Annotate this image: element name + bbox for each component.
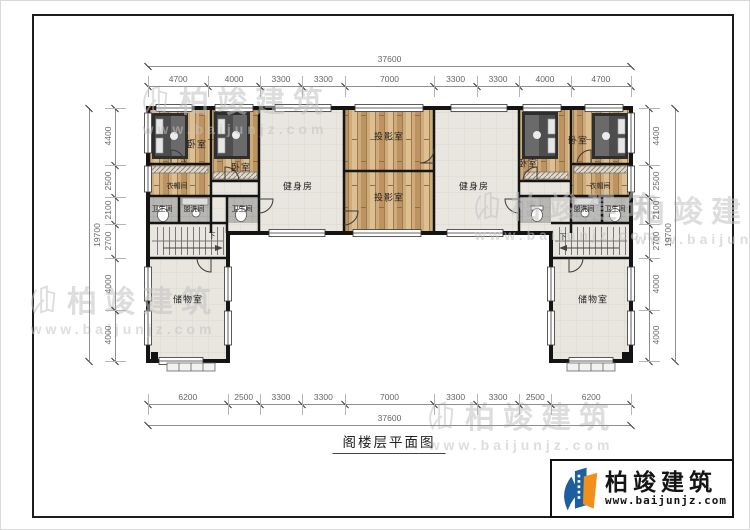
dimension-extension <box>639 108 660 109</box>
dimension-total-line <box>89 108 90 361</box>
dimension-extension <box>639 197 660 198</box>
dimension-extension <box>477 394 478 415</box>
dimension-label: 2500 <box>651 171 661 190</box>
dimension-extension <box>345 394 346 415</box>
dimension-extension <box>105 361 126 362</box>
dimension-extension <box>551 394 552 415</box>
dimension-extension <box>105 310 126 311</box>
dimension-label: 2700 <box>651 231 661 250</box>
room-label-closet: 衣帽间 <box>167 181 188 191</box>
dimension-total-line <box>148 425 631 426</box>
stairs-down-label: 下 <box>209 231 216 241</box>
dimension-label: 7000 <box>380 392 399 402</box>
dimension-extension <box>631 394 632 415</box>
brand-logo-icon <box>557 464 600 514</box>
dimension-extension <box>639 310 660 311</box>
dimension-label: 4700 <box>591 74 610 84</box>
dimension-line <box>148 404 631 405</box>
dimension-total-label: 37600 <box>378 413 402 423</box>
dimension-label: 2500 <box>103 171 113 190</box>
brand-name: 柏竣建筑 <box>605 470 727 494</box>
room-label-gym: 健身房 <box>283 180 313 193</box>
dimension-extension <box>105 165 126 166</box>
dimension-label: 3300 <box>446 392 465 402</box>
drawing-title: 阁楼层平面图 <box>333 435 446 454</box>
dimension-total-label: 37600 <box>378 54 402 64</box>
dimension-line <box>649 108 650 361</box>
dimension-label: 6200 <box>178 392 197 402</box>
drawing-title-wrap: 阁楼层平面图 <box>333 431 446 452</box>
room-label-bedroom: 卧室 <box>568 134 588 147</box>
dimension-extension <box>302 394 303 415</box>
dimension-extension <box>434 76 435 97</box>
room-label-bedroom: 卧室 <box>187 138 207 151</box>
dimension-label: 2100 <box>103 201 113 220</box>
dimension-extension <box>148 76 149 97</box>
dimension-label: 2700 <box>103 231 113 250</box>
floor-plan-page: 柏竣建筑 www.baijunjz.com 柏竣建筑 www.baijunjz.… <box>0 0 750 530</box>
dimension-label: 3300 <box>314 392 333 402</box>
dimension-extension <box>571 76 572 97</box>
dimension-extension <box>639 165 660 166</box>
dimension-label: 6200 <box>582 392 601 402</box>
brand-logo-box: 柏竣建筑 www.baijunjz.com <box>550 459 734 518</box>
dimension-label: 2500 <box>234 392 253 402</box>
dimension-line <box>148 86 631 87</box>
dimension-extension <box>302 76 303 97</box>
dimension-extension <box>105 108 126 109</box>
dimension-label: 3300 <box>446 74 465 84</box>
dimension-extension <box>105 258 126 259</box>
dimension-label: 2500 <box>526 392 545 402</box>
dimension-extension <box>208 76 209 97</box>
room-label-projection: 投影室 <box>374 130 404 143</box>
dimension-total-line <box>675 108 676 361</box>
dimension-label: 4700 <box>169 74 188 84</box>
brand-url: www.baijunjz.com <box>605 494 727 507</box>
room-label-gym: 健身房 <box>459 180 489 193</box>
dimension-extension <box>105 224 126 225</box>
dimension-total-label: 19700 <box>92 223 102 247</box>
room-label-closet: 衣帽间 <box>590 181 611 191</box>
dimension-extension <box>260 394 261 415</box>
dimension-total-line <box>148 66 631 67</box>
room-label-storage: 储物室 <box>173 293 203 306</box>
room-label-bedroom: 卧室 <box>231 161 251 174</box>
dimension-extension <box>345 76 346 97</box>
dimension-label: 4000 <box>651 274 661 293</box>
dimension-extension <box>519 394 520 415</box>
dimension-extension <box>477 76 478 97</box>
dimension-extension <box>631 76 632 97</box>
room-label-wash: 盥洗间 <box>184 204 205 214</box>
dimension-label: 4000 <box>225 74 244 84</box>
dimension-extension <box>519 76 520 97</box>
dimension-extension <box>105 197 126 198</box>
room-label-storage: 储物室 <box>578 293 608 306</box>
dimension-label: 3300 <box>489 74 508 84</box>
dimension-extension <box>639 361 660 362</box>
dimension-extension <box>148 394 149 415</box>
dimension-extension <box>639 224 660 225</box>
dimension-extension <box>260 76 261 97</box>
room-label-projection: 投影室 <box>374 191 404 204</box>
room-label-bedroom: 卧室 <box>518 157 538 170</box>
dimension-label: 4000 <box>535 74 554 84</box>
dimension-label: 2100 <box>651 201 661 220</box>
room-label-bath: 卫生间 <box>232 204 253 214</box>
stairs-down-label: 下 <box>560 232 567 242</box>
dimension-extension <box>434 394 435 415</box>
room-label-bath: 卫生间 <box>605 204 626 214</box>
dimension-label: 4000 <box>103 274 113 293</box>
dimension-label: 4000 <box>651 326 661 345</box>
dimension-extension <box>639 258 660 259</box>
room-label-bath: 卫生间 <box>152 204 173 214</box>
dimension-label: 3300 <box>271 392 290 402</box>
dimension-label: 3300 <box>489 392 508 402</box>
dimension-label: 7000 <box>380 74 399 84</box>
dimension-label: 4400 <box>651 127 661 146</box>
dimension-extension <box>228 394 229 415</box>
dimension-label: 4000 <box>103 326 113 345</box>
dimension-total-label: 19700 <box>663 223 673 247</box>
dimension-line <box>115 108 116 361</box>
dimension-label: 4400 <box>103 127 113 146</box>
dimension-label: 3300 <box>271 74 290 84</box>
dimension-label: 3300 <box>314 74 333 84</box>
room-label-wash: 盥洗间 <box>574 204 595 214</box>
